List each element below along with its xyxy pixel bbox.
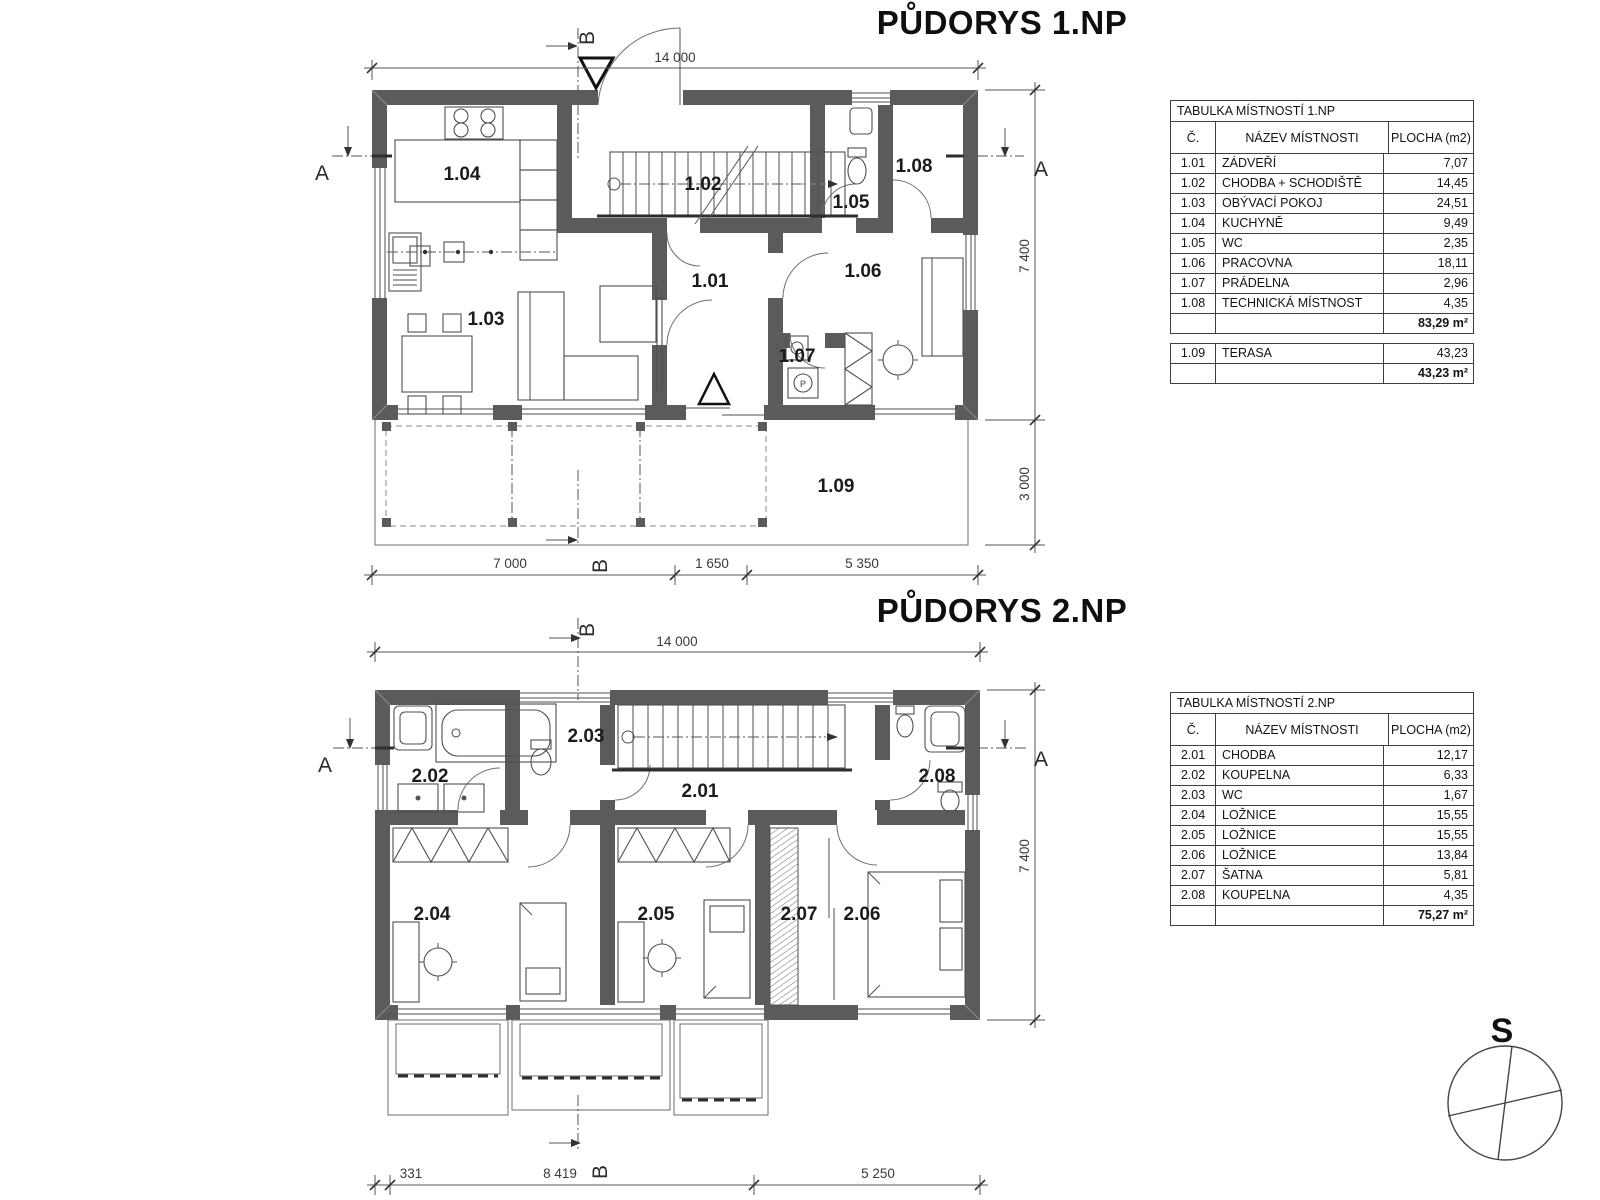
plan1-section-markers: B B A A bbox=[315, 28, 1048, 573]
window-bottom-living-2 bbox=[522, 409, 645, 414]
plan1-terrace bbox=[375, 420, 968, 545]
table-row: 1.03OBÝVACÍ POKOJ24,51 bbox=[1171, 194, 1473, 214]
dim-plan1-bottom-2: 1 650 bbox=[695, 556, 729, 571]
room-label-1-02: 1.02 bbox=[685, 174, 722, 195]
table-row: 1.05WC2,35 bbox=[1171, 234, 1473, 254]
col-number: Č. bbox=[1171, 122, 1216, 153]
plan2-dimensions: 14 000 331 8 419 5 250 7 400 bbox=[367, 634, 1045, 1195]
entry-door bbox=[598, 28, 680, 105]
window-left bbox=[375, 168, 385, 298]
table-row: 2.05LOŽNICE15,55 bbox=[1171, 826, 1473, 846]
table-row: 2.01CHODBA12,17 bbox=[1171, 746, 1473, 766]
table2-total-row: 75,27 m² bbox=[1171, 906, 1473, 925]
table2-title: TABULKA MÍSTNOSTÍ 2.NP bbox=[1171, 693, 1473, 714]
section2-b-bottom-label: B bbox=[589, 1165, 612, 1179]
table2-total: 75,27 m² bbox=[1384, 906, 1473, 925]
col-area: PLOCHA (m2) bbox=[1389, 122, 1473, 153]
section-a-left-label: A bbox=[315, 162, 329, 185]
plan1-title: PŮDORYS 1.NP bbox=[872, 4, 1132, 42]
dormer-box-2 bbox=[512, 1020, 670, 1110]
table-row: 2.08KOUPELNA4,35 bbox=[1171, 886, 1473, 906]
window-top-tech bbox=[852, 93, 890, 102]
window-right-2 bbox=[968, 795, 977, 830]
window-bottom-206 bbox=[858, 1009, 950, 1014]
room-table-1np-terrace: 1.09TERASA43,23 43,23 m² bbox=[1170, 343, 1474, 384]
room-label-1-07: 1.07 bbox=[779, 346, 816, 367]
plan2-stairs bbox=[612, 705, 852, 770]
room-label-1-06: 1.06 bbox=[845, 261, 882, 282]
dim-plan1-right-2: 3 000 bbox=[1017, 467, 1032, 501]
north-compass: S bbox=[1448, 1012, 1562, 1160]
door-arc-hall-entry bbox=[667, 233, 700, 266]
window-bottom-study bbox=[875, 409, 955, 414]
window-bottom-204 bbox=[398, 1009, 506, 1014]
section-b-bottom-label: B bbox=[589, 559, 612, 573]
table-row: 1.04KUCHYNĚ9,49 bbox=[1171, 214, 1473, 234]
table1-header: Č. NÁZEV MÍSTNOSTI PLOCHA (m2) bbox=[1171, 122, 1473, 154]
table-row: 1.01ZÁDVEŘÍ7,07 bbox=[1171, 154, 1473, 174]
plan2-drawing: 14 000 331 8 419 5 250 7 400 B B A bbox=[318, 618, 1048, 1195]
table-row: 2.04LOŽNICE15,55 bbox=[1171, 806, 1473, 826]
door-arc-tech bbox=[893, 180, 931, 218]
dormer-box-3 bbox=[674, 1020, 768, 1115]
window-bottom-living-1 bbox=[398, 409, 493, 414]
room-label-1-09: 1.09 bbox=[818, 476, 855, 497]
dim-plan1-bottom-1: 7 000 bbox=[493, 556, 527, 571]
compass-north-label: S bbox=[1491, 1012, 1514, 1050]
door-arc-study bbox=[783, 253, 828, 298]
table-row: 2.02KOUPELNA6,33 bbox=[1171, 766, 1473, 786]
sliding-door-207 bbox=[829, 838, 834, 1000]
entrance-marker-icon bbox=[580, 58, 613, 88]
door-arc-206 bbox=[837, 825, 877, 865]
dim-plan1-top: 14 000 bbox=[654, 50, 695, 65]
dim-plan2-bottom-3: 5 250 bbox=[861, 1166, 895, 1181]
window-bottom-207 bbox=[676, 1009, 764, 1014]
door-arc-205 bbox=[706, 825, 748, 867]
table2-header: Č. NÁZEV MÍSTNOSTI PLOCHA (m2) bbox=[1171, 714, 1473, 746]
table1-title: TABULKA MÍSTNOSTÍ 1.NP bbox=[1171, 101, 1473, 122]
door-arc-living bbox=[667, 300, 712, 345]
table-row: 1.09TERASA43,23 bbox=[1171, 344, 1473, 364]
col-number: Č. bbox=[1171, 714, 1216, 745]
wc-203-fixture bbox=[531, 740, 551, 775]
wc-fixtures-105 bbox=[848, 108, 872, 184]
room-label-2-07: 2.07 bbox=[781, 904, 818, 925]
col-area: PLOCHA (m2) bbox=[1389, 714, 1473, 745]
window-bottom-205 bbox=[520, 1009, 660, 1014]
table1-total: 83,29 m² bbox=[1384, 314, 1473, 333]
table-row: 1.06PRACOVNA18,11 bbox=[1171, 254, 1473, 274]
dim-plan1-right-1: 7 400 bbox=[1017, 239, 1032, 273]
table1-total-row: 83,29 m² bbox=[1171, 314, 1473, 333]
table-row: 2.06LOŽNICE13,84 bbox=[1171, 846, 1473, 866]
dim-plan2-bottom-1: 331 bbox=[400, 1166, 423, 1181]
terrace-exit-marker-icon bbox=[699, 374, 729, 404]
section2-a-left-label: A bbox=[318, 754, 332, 777]
table-row: 2.07ŠATNA5,81 bbox=[1171, 866, 1473, 886]
window-right-study bbox=[966, 235, 975, 310]
kitchen-cabinets bbox=[520, 140, 557, 260]
room-label-1-08: 1.08 bbox=[896, 156, 933, 177]
kitchen-sink-unit bbox=[389, 233, 421, 291]
window-top-a bbox=[520, 693, 610, 702]
section-a-right-label: A bbox=[1034, 158, 1048, 181]
room-label-1-04: 1.04 bbox=[444, 164, 481, 185]
room-label-2-03: 2.03 bbox=[568, 726, 605, 747]
room-label-1-03: 1.03 bbox=[468, 309, 505, 330]
openplan-divider bbox=[387, 250, 557, 254]
window-top-b bbox=[828, 693, 893, 702]
compass-needle-horizontal bbox=[1448, 1090, 1562, 1116]
table-row: 1.02CHODBA + SCHODIŠTĚ14,45 bbox=[1171, 174, 1473, 194]
dim-plan1-bottom-3: 5 350 bbox=[845, 556, 879, 571]
dormer-box-1 bbox=[388, 1020, 508, 1115]
room-label-1-01: 1.01 bbox=[692, 271, 729, 292]
bedroom-206-furniture bbox=[868, 872, 965, 997]
section2-b-top-label: B bbox=[576, 623, 599, 637]
sliding-door-terrace bbox=[686, 408, 764, 415]
section2-a-right-label: A bbox=[1034, 748, 1048, 771]
room-table-2np: TABULKA MÍSTNOSTÍ 2.NP Č. NÁZEV MÍSTNOST… bbox=[1170, 692, 1474, 926]
col-room-name: NÁZEV MÍSTNOSTI bbox=[1216, 122, 1389, 153]
table-row: 2.03WC1,67 bbox=[1171, 786, 1473, 806]
table-row: 1.08TECHNICKÁ MÍSTNOST4,35 bbox=[1171, 294, 1473, 314]
room-label-1-05: 1.05 bbox=[833, 192, 870, 213]
table-row: 1.07PRÁDELNA2,96 bbox=[1171, 274, 1473, 294]
table1-extra-total-row: 43,23 m² bbox=[1171, 364, 1473, 383]
drawing-sheet: P bbox=[0, 0, 1600, 1200]
table1-extra-total: 43,23 m² bbox=[1384, 364, 1473, 383]
room-label-2-01: 2.01 bbox=[682, 781, 719, 802]
dim-plan2-top: 14 000 bbox=[656, 634, 697, 649]
dim-plan2-right-1: 7 400 bbox=[1017, 839, 1032, 873]
room-label-2-05: 2.05 bbox=[638, 904, 675, 925]
coffee-table bbox=[600, 286, 656, 342]
room-label-2-04: 2.04 bbox=[414, 904, 451, 925]
room-label-2-02: 2.02 bbox=[412, 766, 449, 787]
plan2-title: PŮDORYS 2.NP bbox=[872, 592, 1132, 630]
room-label-2-06: 2.06 bbox=[844, 904, 881, 925]
room-label-2-08: 2.08 bbox=[919, 766, 956, 787]
washer-label: P bbox=[800, 379, 806, 389]
door-arc-204 bbox=[528, 825, 570, 867]
door-arc-202 bbox=[458, 768, 500, 810]
window-left-2 bbox=[378, 765, 387, 810]
plan1-drawing: P bbox=[315, 28, 1048, 585]
col-room-name: NÁZEV MÍSTNOSTI bbox=[1216, 714, 1389, 745]
section-b-top-label: B bbox=[576, 31, 599, 45]
stove-icon bbox=[445, 107, 503, 139]
sofa bbox=[518, 292, 638, 400]
dining-set bbox=[402, 242, 472, 414]
room-table-1np: TABULKA MÍSTNOSTÍ 1.NP Č. NÁZEV MÍSTNOST… bbox=[1170, 100, 1474, 334]
dim-plan2-bottom-2: 8 419 bbox=[543, 1166, 577, 1181]
